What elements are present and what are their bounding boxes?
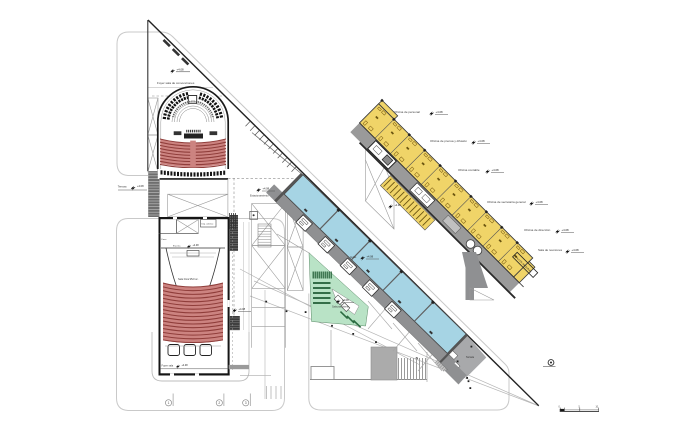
svg-text:Oficina contable: Oficina contable [458,168,480,172]
svg-text:Oficina de secretaría general: Oficina de secretaría general [487,200,526,204]
svg-text:Estacionamiento: Estacionamiento [250,195,269,198]
svg-text:Foyer sala de convenciones: Foyer sala de convenciones [157,81,195,85]
svg-text:Aulas: Aulas [350,256,357,259]
svg-text:+4.08: +4.08 [536,200,544,204]
svg-text:+4.08: +4.08 [478,139,486,143]
svg-text:Terraza: Terraza [118,185,127,189]
svg-text:Sala lírica 952 loc.: Sala lírica 952 loc. [178,278,199,281]
svg-text:Foso: Foso [162,239,168,241]
svg-text:+4.08: +4.08 [367,255,374,259]
svg-text:+4.08: +4.08 [263,187,270,191]
svg-text:Escena: Escena [173,245,181,247]
svg-text:Oficina de personal: Oficina de personal [394,110,420,114]
svg-text:+4.08: +4.08 [395,204,402,207]
svg-text:+4.08: +4.08 [182,364,189,367]
svg-text:Oficina de prensa y difusión: Oficina de prensa y difusión [430,139,467,143]
svg-text:+4.08: +4.08 [177,68,185,72]
svg-text:2: 2 [218,401,220,405]
svg-text:Dep. artístico: Dep. artístico [202,223,215,226]
svg-text:+4.08: +4.08 [342,298,349,302]
svg-text:+4.08: +4.08 [239,307,246,311]
svg-text:Foyer sala: Foyer sala [162,365,174,368]
svg-text:1: 1 [168,401,170,405]
svg-text:Sala de reuniones: Sala de reuniones [538,248,563,252]
svg-text:Terraza: Terraza [466,356,475,359]
svg-text:Oficina de dirección: Oficina de dirección [524,228,551,232]
svg-text:3: 3 [245,401,247,405]
svg-text:+4.08: +4.08 [193,244,200,247]
svg-text:+4.08: +4.08 [436,110,444,114]
svg-text:Sala polivalente: Sala polivalente [332,306,350,309]
svg-text:+4.08: +4.08 [562,228,570,232]
svg-text:+4.08: +4.08 [137,184,144,188]
svg-text:+4.08: +4.08 [492,168,500,172]
svg-text:+4.08: +4.08 [572,248,580,252]
